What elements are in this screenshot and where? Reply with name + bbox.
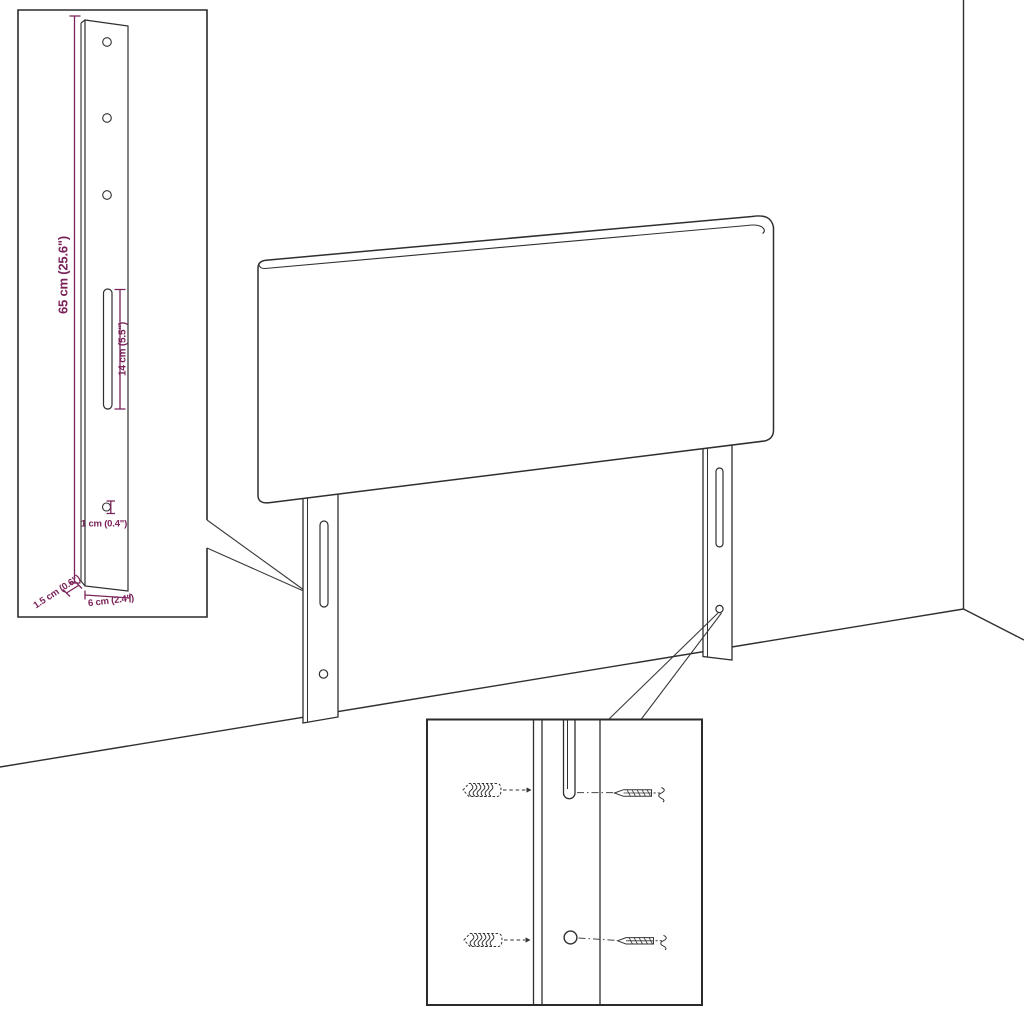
hardware-box-frame (427, 720, 702, 1006)
product-assembly-diagram: 65 cm (25.6") 14 cm (5.5") 1 cm (0.4") 1… (0, 0, 1024, 1024)
left-leg-slot-icon (320, 521, 328, 607)
bracket-anchor-hole-icon (103, 503, 111, 511)
left-mounting-leg (303, 466, 338, 723)
right-leg-slot-icon (716, 468, 723, 547)
dim-height-line (70, 16, 81, 583)
headboard-panel (258, 216, 774, 503)
bracket-drawing (81, 20, 128, 591)
right-leg-hole-icon (716, 605, 723, 612)
dimension-label-height: 65 cm (25.6") (56, 236, 71, 314)
bracket-screw-hole-icon (103, 38, 112, 47)
headboard-outline (258, 216, 774, 503)
callout-line (608, 613, 719, 721)
bracket-screw-hole-icon (103, 191, 112, 200)
bracket-screw-hole-icon (103, 114, 112, 123)
callout-wedge-left (207, 520, 304, 591)
dimension-label-hole-diameter: 1 cm (0.4") (81, 519, 127, 530)
callout-line (641, 613, 722, 720)
hardware-detail-box (427, 720, 702, 1006)
hole-icon (564, 931, 577, 944)
bracket-slot-icon (104, 289, 113, 409)
diagram-line-art (0, 0, 1024, 1024)
floor-line-right (964, 609, 1024, 640)
dimension-label-slot-length: 14 cm (5.5") (118, 322, 129, 376)
left-leg-hole-icon (319, 670, 327, 678)
